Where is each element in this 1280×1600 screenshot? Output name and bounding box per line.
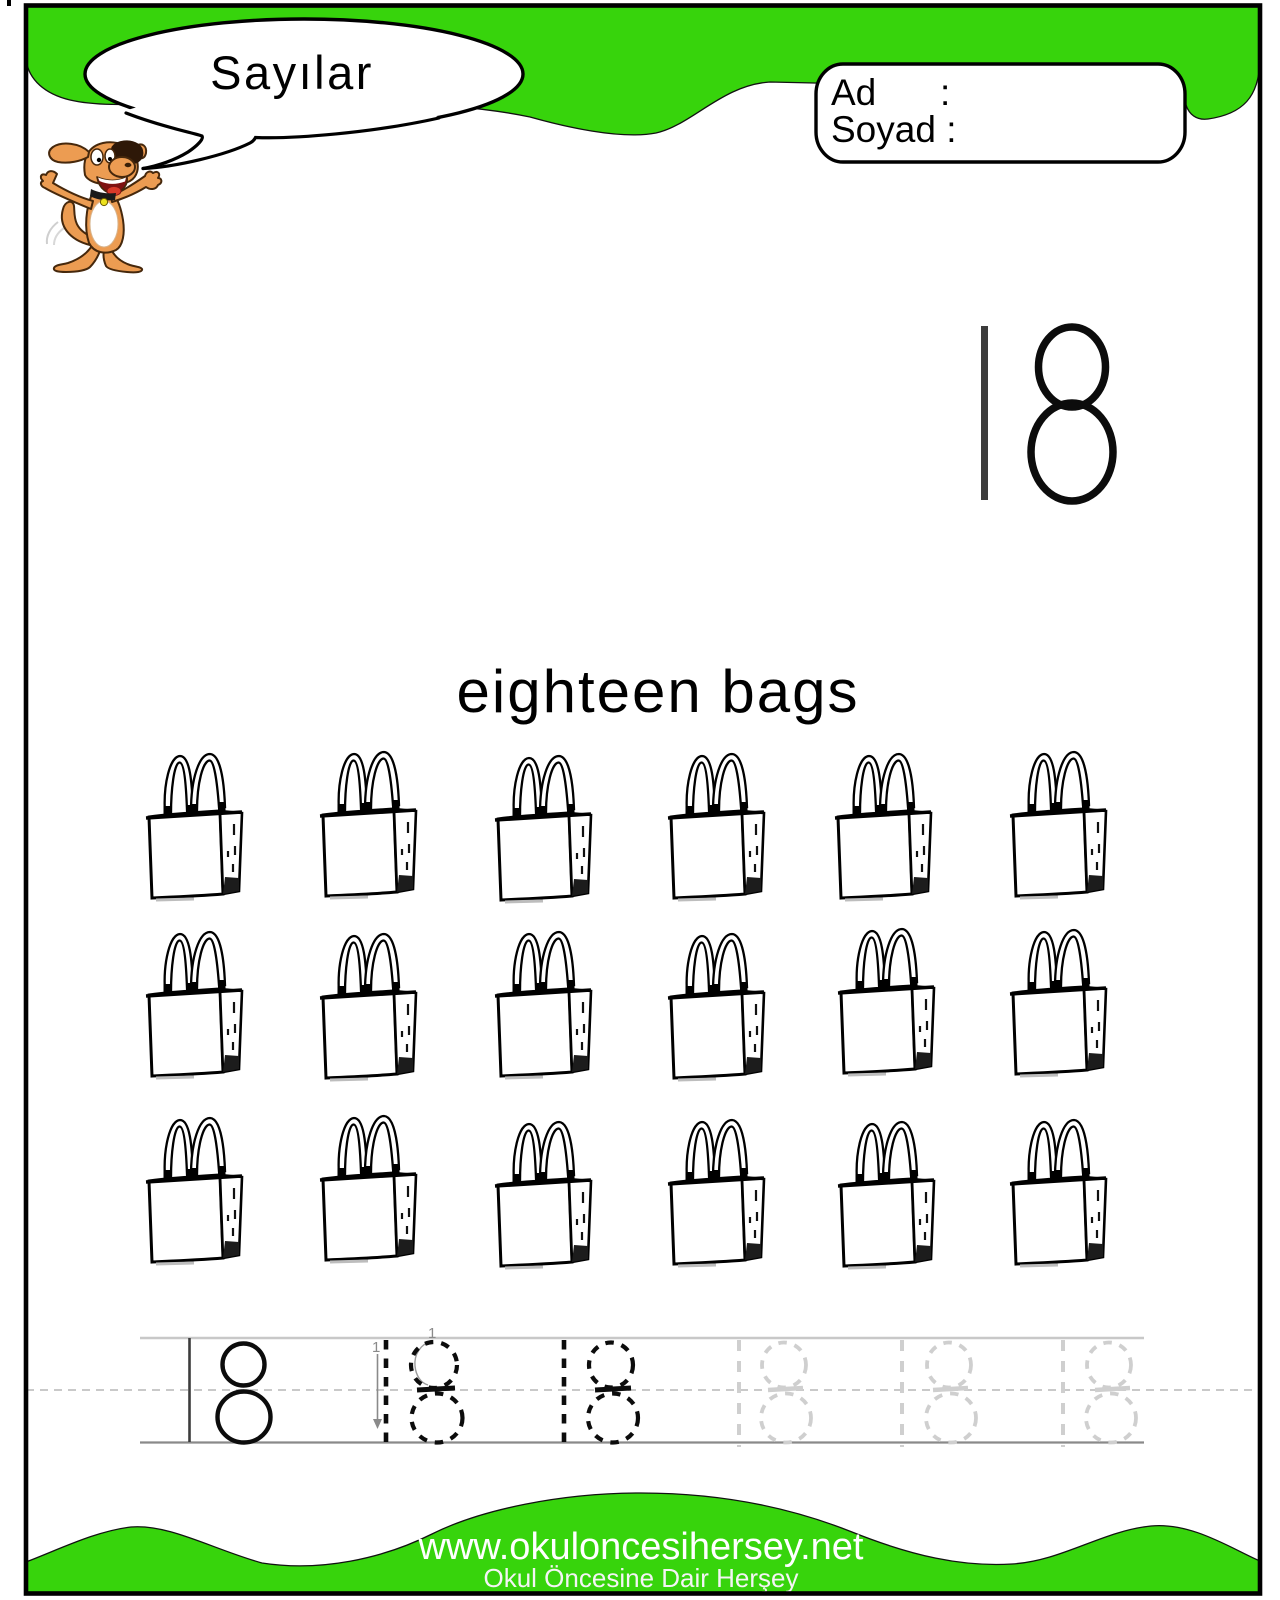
svg-text:Ad: Ad — [831, 72, 876, 113]
svg-text:Sayılar: Sayılar — [210, 46, 374, 99]
svg-text:www.okuloncesihersey.net: www.okuloncesihersey.net — [418, 1526, 864, 1568]
svg-text:Soyad :: Soyad : — [831, 109, 956, 150]
svg-text::: : — [940, 72, 950, 113]
svg-text:1: 1 — [428, 1325, 436, 1342]
svg-text:eighteen bags: eighteen bags — [457, 658, 860, 725]
svg-text:1: 1 — [372, 1339, 380, 1356]
svg-text:Okul Öncesine Dair Herşey: Okul Öncesine Dair Herşey — [484, 1563, 799, 1593]
